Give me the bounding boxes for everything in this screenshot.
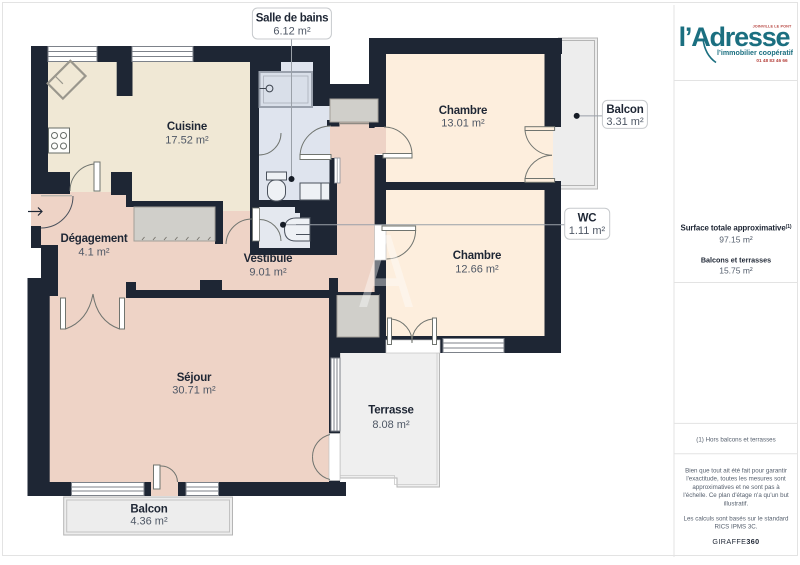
svg-text:Surface totale approximative(1: Surface totale approximative(1): [681, 224, 792, 233]
svg-text:Bien que tout ait été fait pou: Bien que tout ait été fait pour garantir: [685, 468, 787, 475]
svg-text:approximatives et ne sont pas: approximatives et ne sont pas à: [692, 484, 780, 491]
svg-text:01 48 83 46 66: 01 48 83 46 66: [756, 58, 788, 63]
svg-text:6.12 m²: 6.12 m²: [273, 26, 311, 38]
svg-text:12.66 m²: 12.66 m²: [455, 264, 499, 276]
svg-text:9.01 m²: 9.01 m²: [249, 267, 287, 279]
svg-text:l'échelle. Ce plan d'étage n'a: l'échelle. Ce plan d'étage n'a qu'un but: [683, 492, 789, 499]
svg-text:l’immobilier coopératif: l’immobilier coopératif: [717, 49, 794, 57]
svg-text:Cuisine: Cuisine: [167, 121, 207, 133]
svg-text:Vestibule: Vestibule: [244, 253, 293, 265]
svg-text:(1) Hors balcons et terrasses: (1) Hors balcons et terrasses: [696, 437, 775, 444]
svg-text:Chambre: Chambre: [453, 250, 501, 262]
svg-text:WC: WC: [578, 213, 597, 225]
svg-text:illustratif.: illustratif.: [724, 500, 749, 507]
svg-text:Balcon: Balcon: [606, 104, 643, 116]
svg-text:4.36 m²: 4.36 m²: [130, 516, 168, 528]
svg-text:Salle de bains: Salle de bains: [256, 13, 329, 25]
svg-text:RICS IPMS 3C.: RICS IPMS 3C.: [715, 524, 758, 531]
svg-text:Balcon: Balcon: [130, 504, 167, 516]
svg-text:3.31 m²: 3.31 m²: [606, 116, 644, 128]
svg-text:8.08 m²: 8.08 m²: [372, 419, 410, 431]
svg-text:1.11 m²: 1.11 m²: [569, 225, 606, 237]
svg-text:97.15 m²: 97.15 m²: [719, 235, 753, 245]
svg-text:GIRAFFE360: GIRAFFE360: [712, 537, 759, 546]
svg-text:A: A: [359, 213, 414, 329]
svg-text:30.71 m²: 30.71 m²: [172, 385, 216, 397]
svg-text:4.1 m²: 4.1 m²: [78, 247, 110, 259]
svg-text:Dégagement: Dégagement: [60, 233, 127, 245]
svg-text:15.75 m²: 15.75 m²: [719, 266, 753, 276]
svg-text:17.52 m²: 17.52 m²: [165, 135, 209, 147]
svg-text:l'exactitude, toutes les mesur: l'exactitude, toutes les mesures sont: [686, 476, 786, 483]
svg-text:Chambre: Chambre: [439, 105, 487, 117]
svg-text:13.01 m²: 13.01 m²: [441, 118, 485, 130]
svg-text:Les calculs sont basés sur le: Les calculs sont basés sur le standard: [684, 516, 789, 523]
svg-text:Séjour: Séjour: [177, 372, 212, 384]
svg-text:Terrasse: Terrasse: [368, 405, 414, 417]
svg-text:l’Adresse: l’Adresse: [679, 22, 791, 52]
svg-text:Balcons et terrasses: Balcons et terrasses: [701, 256, 771, 265]
